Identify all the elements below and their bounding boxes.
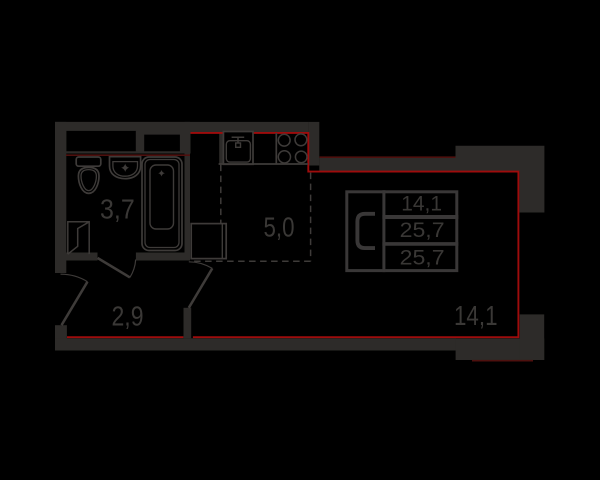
svg-text:14,1: 14,1 — [454, 300, 498, 331]
svg-text:25,7: 25,7 — [400, 245, 445, 269]
svg-text:25,7: 25,7 — [400, 218, 445, 242]
svg-text:5,0: 5,0 — [264, 212, 295, 243]
svg-text:14,1: 14,1 — [401, 192, 442, 216]
svg-text:2,9: 2,9 — [112, 300, 144, 331]
svg-text:3,7: 3,7 — [100, 193, 135, 224]
